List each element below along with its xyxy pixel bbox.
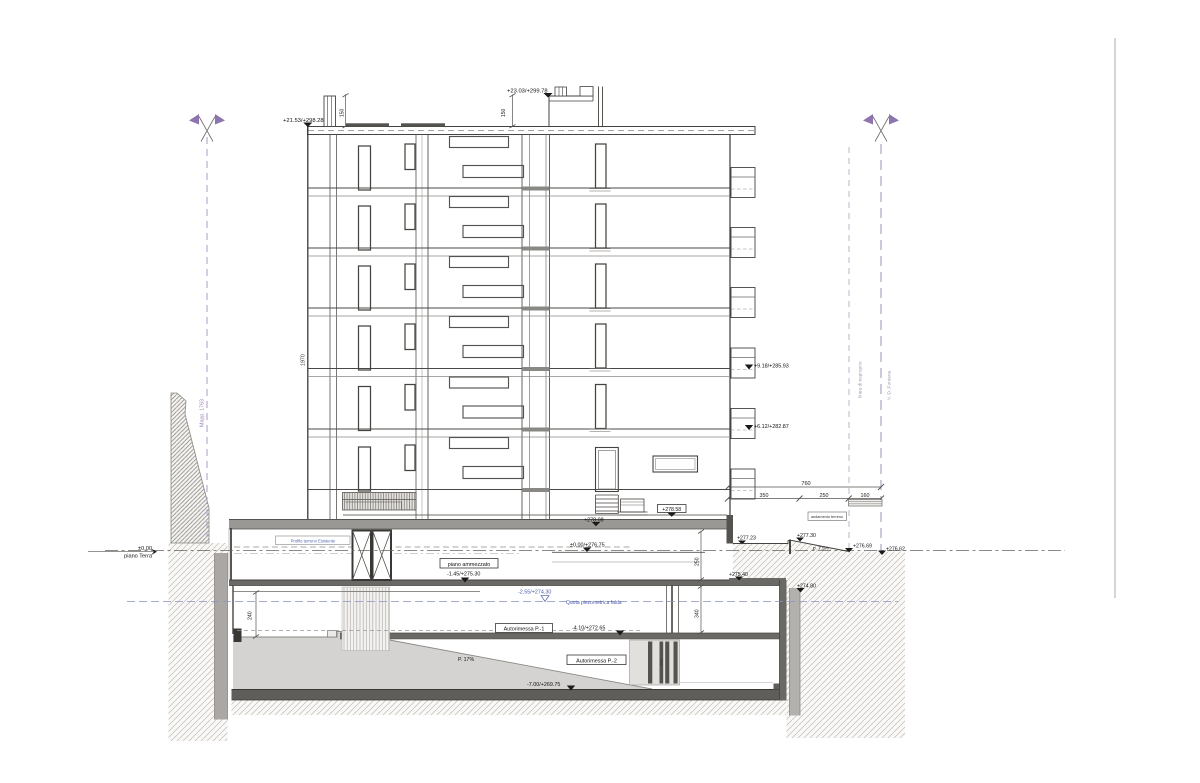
svg-text:piano ammezzato: piano ammezzato	[448, 562, 491, 568]
svg-text:233: 233	[659, 659, 664, 666]
svg-text:760: 760	[801, 481, 810, 487]
svg-text:+21.53/+298.28: +21.53/+298.28	[283, 118, 324, 124]
svg-text:P. 17%: P. 17%	[458, 657, 474, 663]
svg-text:+276.69: +276.69	[853, 544, 872, 550]
svg-text:Autorimessa P.-2: Autorimessa P.-2	[576, 658, 617, 664]
svg-text:350: 350	[760, 493, 769, 499]
svg-text:250: 250	[820, 493, 829, 499]
svg-text:Mapp. 1763: Mapp. 1763	[200, 399, 206, 427]
svg-text:andamento terreno: andamento terreno	[811, 515, 843, 519]
svg-text:1970: 1970	[301, 354, 307, 366]
svg-text:±0.00: ±0.00	[138, 546, 152, 552]
svg-text:Quota piezometrica falda: Quota piezometrica falda	[566, 600, 622, 606]
svg-text:250: 250	[695, 557, 701, 566]
svg-text:+9.18/+285.93: +9.18/+285.93	[754, 364, 789, 370]
svg-text:piano Terra: piano Terra	[124, 554, 153, 560]
svg-text:+276.62: +276.62	[886, 547, 905, 553]
svg-text:-4.10/+272.65: -4.10/+272.65	[572, 626, 605, 632]
svg-text:+6.12/+282.87: +6.12/+282.87	[754, 424, 789, 430]
svg-text:-2.55/+274.30: -2.55/+274.30	[518, 590, 551, 596]
svg-text:+278.58: +278.58	[662, 507, 681, 513]
svg-text:150: 150	[501, 108, 507, 117]
svg-text:240: 240	[248, 611, 254, 620]
svg-text:Profilo terreno Esistente: Profilo terreno Esistente	[291, 538, 336, 543]
svg-text:Autorimessa P.-1: Autorimessa P.-1	[504, 627, 545, 633]
svg-text:+23.03/+299.78: +23.03/+299.78	[507, 89, 548, 95]
svg-text:linea di esproprio: linea di esproprio	[858, 361, 864, 398]
svg-text:160: 160	[861, 493, 870, 499]
svg-text:-1.45/+275.30: -1.45/+275.30	[447, 572, 480, 578]
svg-text:150: 150	[340, 108, 346, 117]
svg-text:-7.00/+269.75: -7.00/+269.75	[527, 682, 560, 688]
svg-text:V. D. Fontana: V. D. Fontana	[887, 371, 893, 400]
svg-text:340: 340	[695, 609, 701, 618]
